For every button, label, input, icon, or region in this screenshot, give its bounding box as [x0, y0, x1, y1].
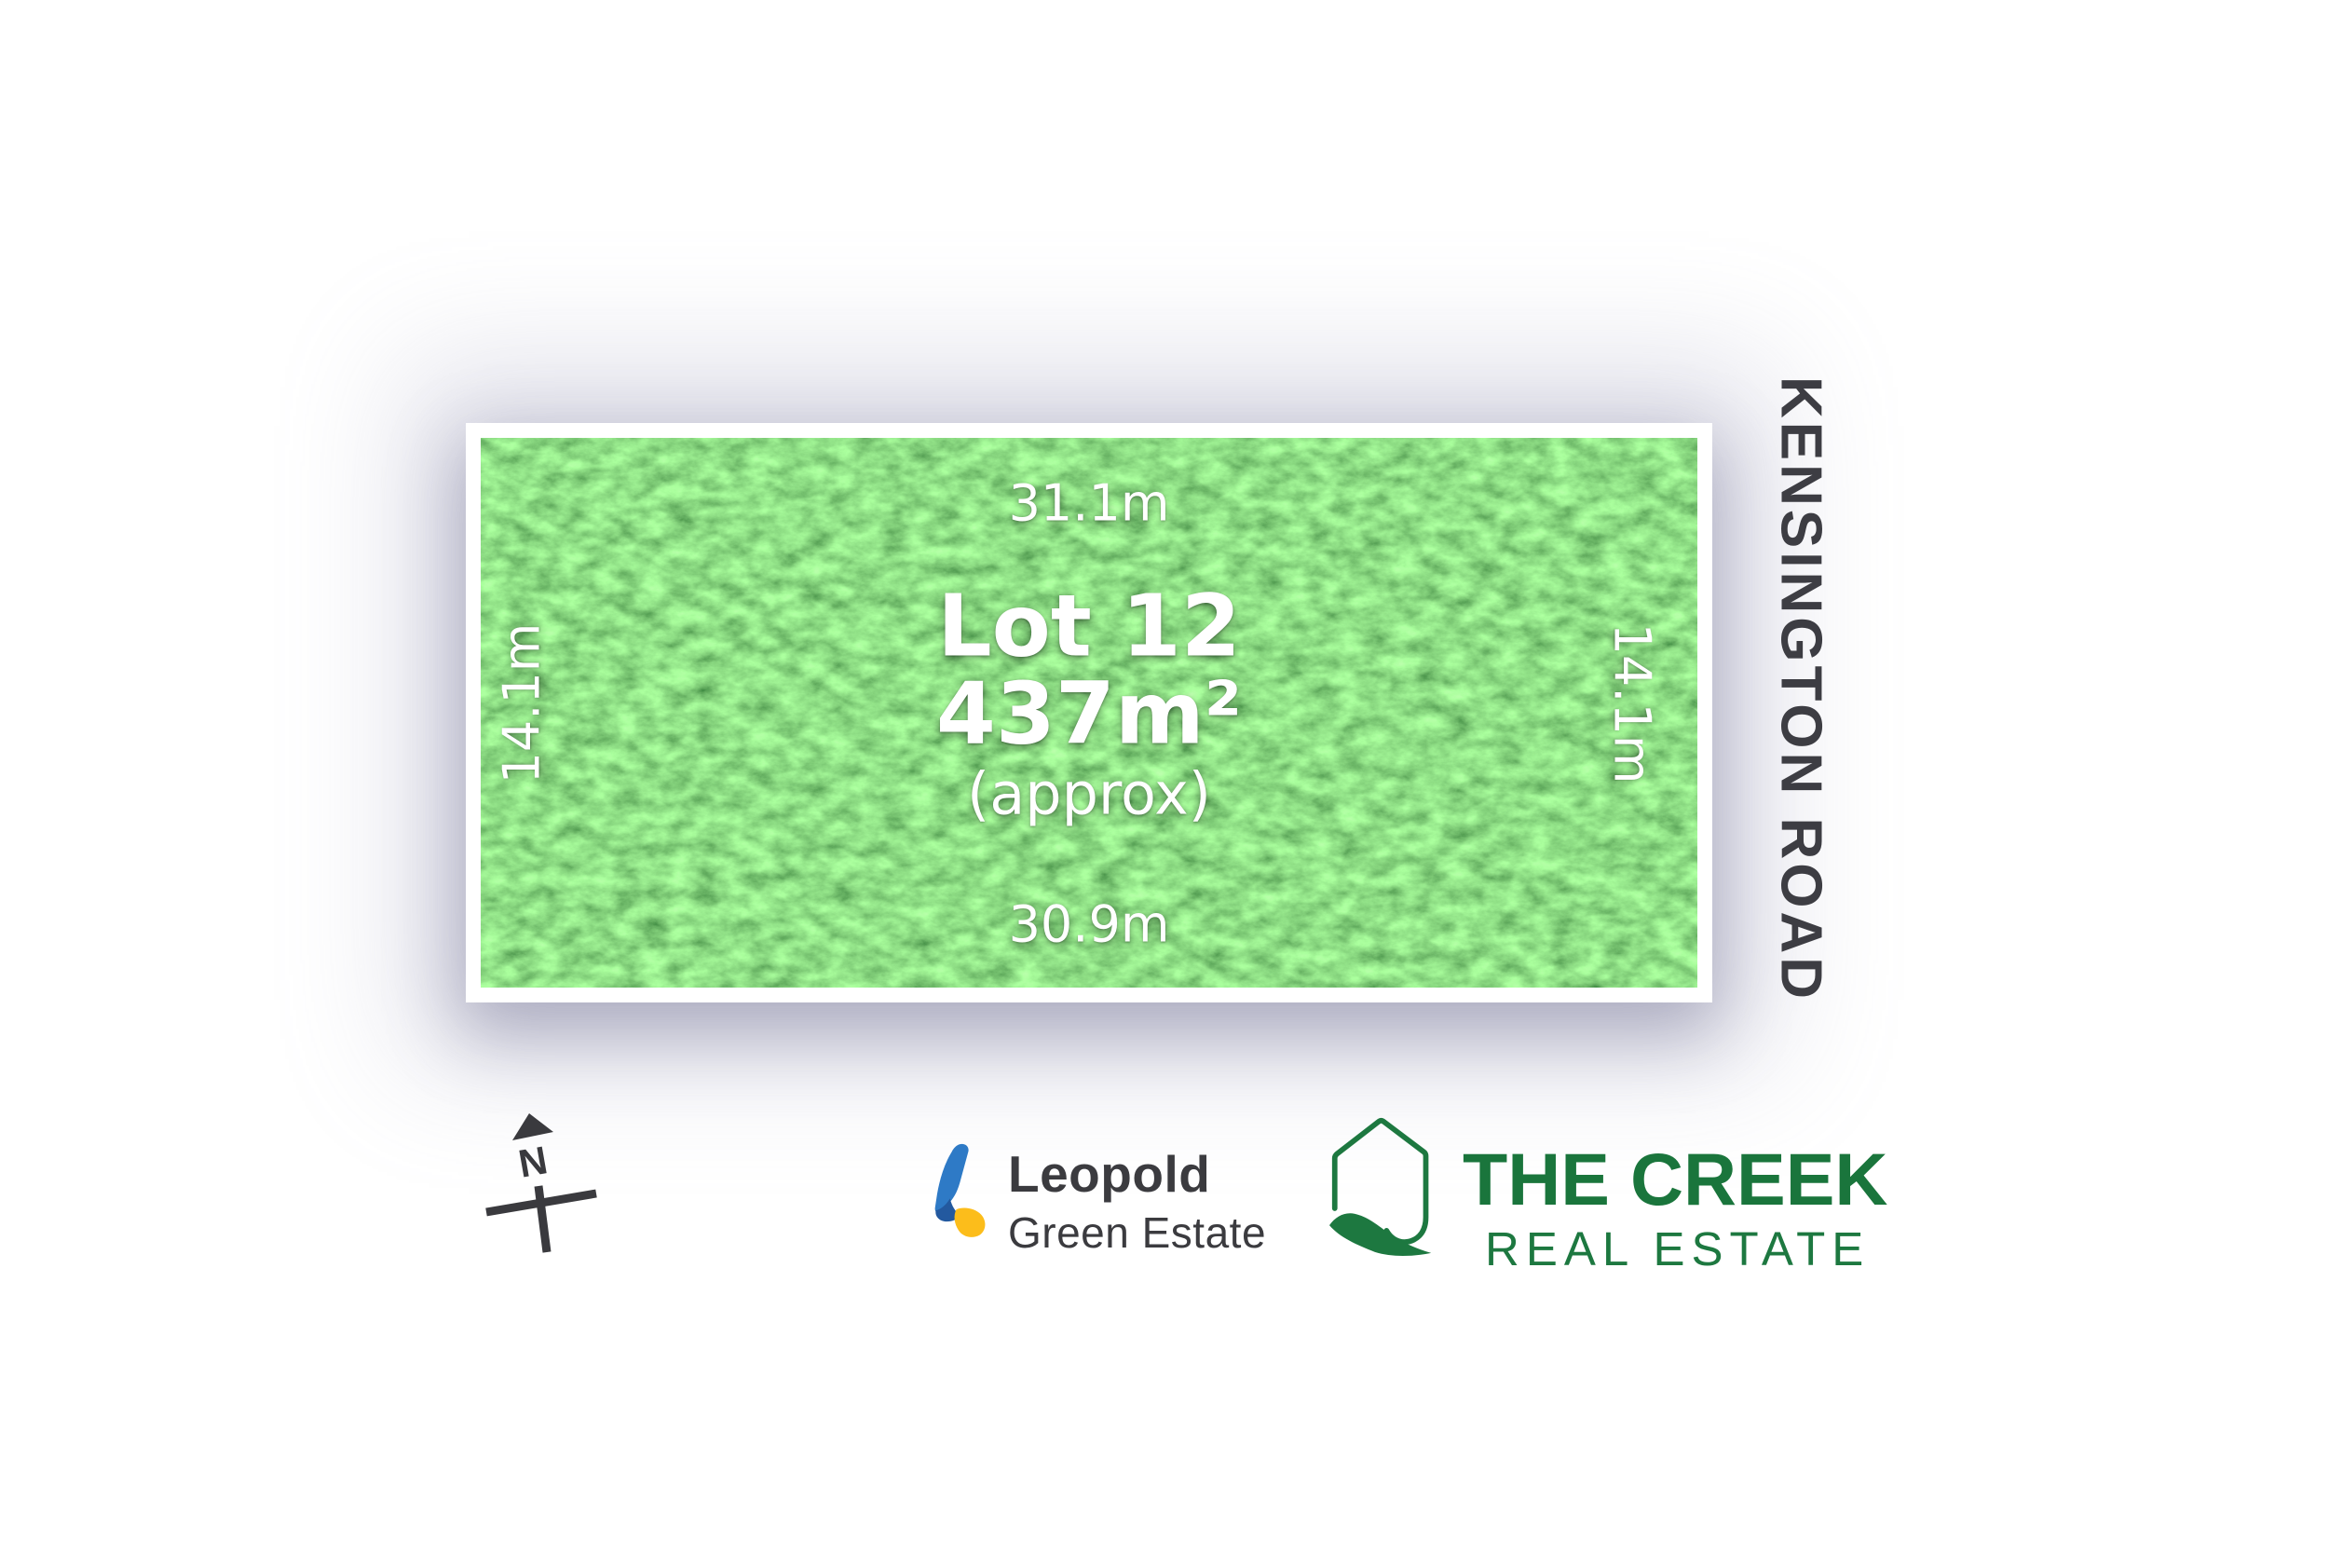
leopold-logo-text: Leopold Green Estate — [1008, 1149, 1266, 1254]
lot-label: Lot 12 — [481, 577, 1697, 676]
creek-logo-text: THE CREEK REAL ESTATE — [1463, 1142, 1888, 1273]
leopold-yellow-leaf — [955, 1208, 986, 1237]
dimension-bottom: 30.9m — [481, 895, 1697, 954]
leopold-blue-ribbon — [935, 1144, 969, 1212]
road-label: KENSINGTON ROAD — [1768, 376, 1834, 1002]
dimension-left: 14.1m — [493, 623, 552, 784]
creek-name: THE CREEK — [1463, 1142, 1888, 1216]
north-arrow-compass: N — [470, 1099, 610, 1258]
north-arrow-icon — [512, 1113, 553, 1140]
leopold-subtitle: Green Estate — [1008, 1211, 1266, 1254]
dimension-right: 14.1m — [1603, 623, 1662, 784]
lot-area-qualifier: (approx) — [481, 760, 1697, 828]
creek-house-icon — [1329, 1115, 1437, 1278]
creek-swoosh — [1329, 1213, 1431, 1256]
dimension-top: 31.1m — [481, 474, 1697, 533]
lot-area: 437m² — [481, 664, 1697, 764]
lot-grass-area: 31.1m Lot 12 437m² (approx) 30.9m 14.1m … — [481, 438, 1697, 988]
lot-plan: 31.1m Lot 12 437m² (approx) 30.9m 14.1m … — [466, 423, 1712, 1002]
leopold-logo-icon — [934, 1143, 987, 1241]
north-label: N — [515, 1138, 551, 1186]
compass-cross-vertical — [538, 1186, 547, 1252]
leopold-name: Leopold — [1008, 1149, 1266, 1200]
creek-subtitle: REAL ESTATE — [1463, 1225, 1888, 1273]
